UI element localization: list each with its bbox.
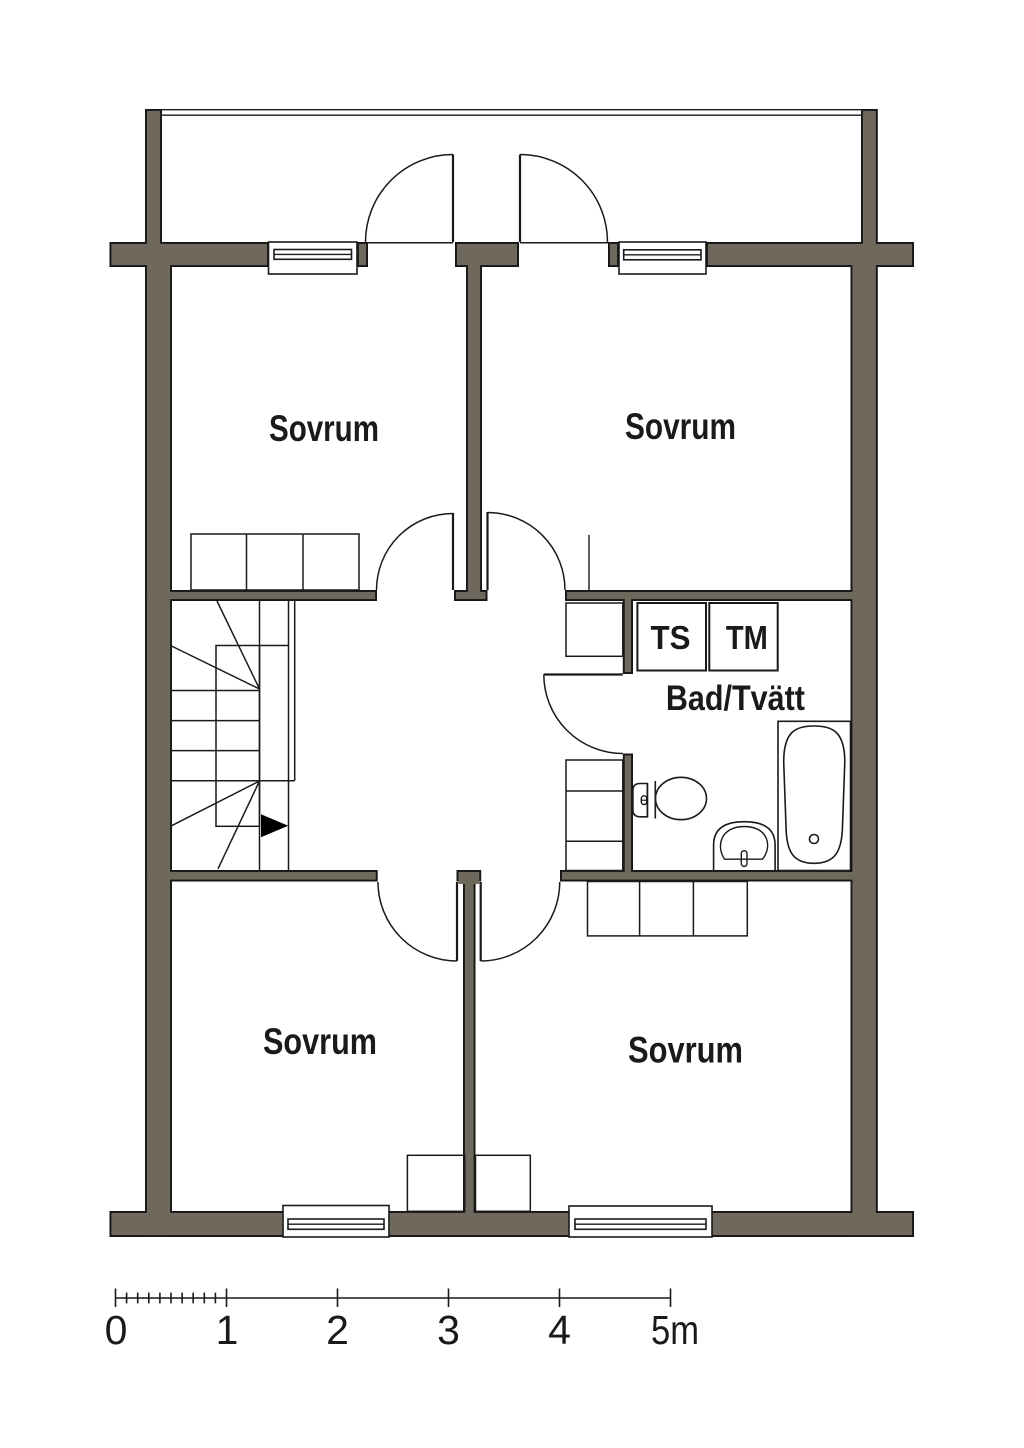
- svg-text:2: 2: [326, 1307, 349, 1353]
- svg-text:TM: TM: [726, 620, 768, 657]
- svg-text:3: 3: [437, 1307, 460, 1353]
- svg-text:Sovrum: Sovrum: [263, 1020, 377, 1062]
- svg-text:Sovrum: Sovrum: [269, 407, 379, 449]
- svg-text:1: 1: [216, 1307, 239, 1353]
- svg-text:TS: TS: [651, 620, 691, 657]
- svg-text:4: 4: [548, 1307, 571, 1353]
- svg-text:Bad/Tvätt: Bad/Tvätt: [666, 678, 805, 718]
- svg-text:0: 0: [105, 1307, 128, 1353]
- svg-text:5m: 5m: [651, 1307, 699, 1353]
- svg-text:Sovrum: Sovrum: [625, 405, 736, 447]
- svg-text:Sovrum: Sovrum: [628, 1029, 743, 1071]
